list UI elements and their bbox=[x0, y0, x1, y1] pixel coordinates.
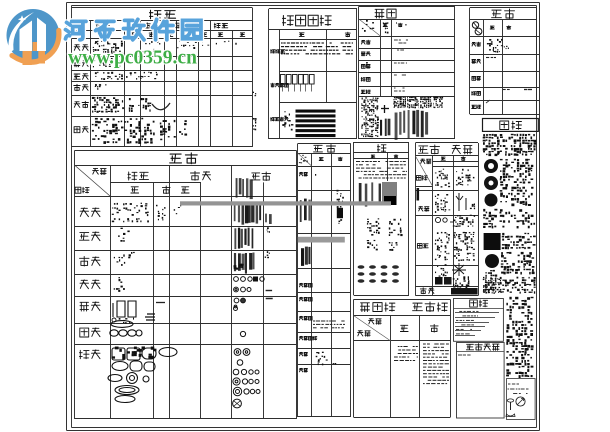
svg-text:www.pc0359.cn: www.pc0359.cn bbox=[68, 48, 197, 69]
